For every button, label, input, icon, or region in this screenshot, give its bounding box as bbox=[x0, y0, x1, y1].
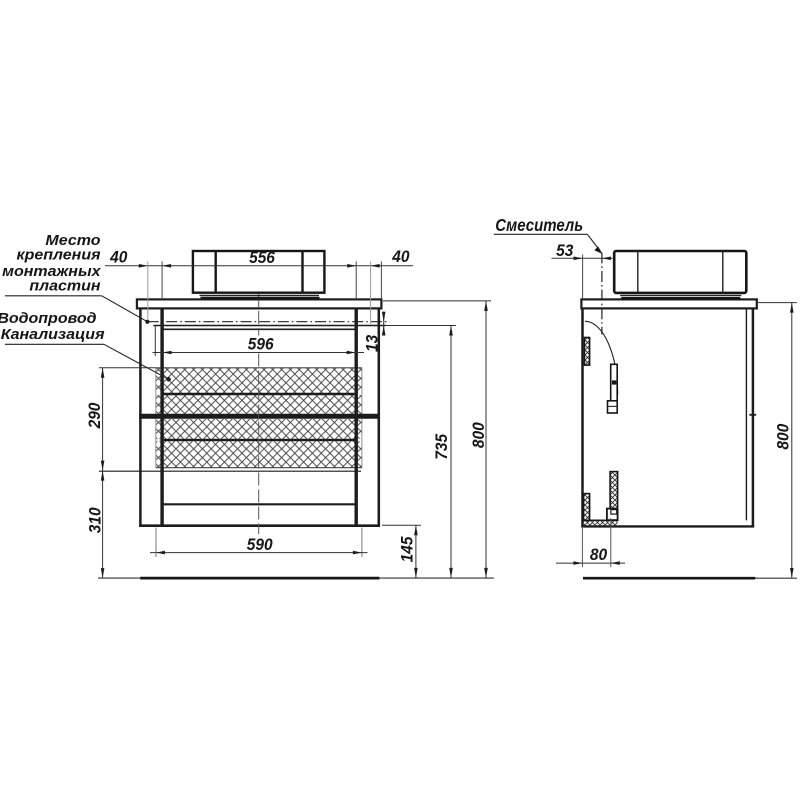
svg-text:Канализация: Канализация bbox=[1, 326, 105, 343]
svg-text:556: 556 bbox=[249, 248, 276, 267]
svg-text:800: 800 bbox=[774, 424, 793, 450]
svg-text:590: 590 bbox=[247, 536, 273, 555]
svg-text:40: 40 bbox=[391, 247, 409, 266]
svg-text:145: 145 bbox=[398, 536, 417, 563]
svg-text:Смеситель: Смеситель bbox=[495, 216, 583, 235]
svg-text:53: 53 bbox=[556, 242, 573, 261]
svg-text:13: 13 bbox=[363, 335, 382, 352]
svg-text:800: 800 bbox=[469, 422, 488, 448]
svg-text:Водопровод: Водопровод bbox=[0, 310, 97, 327]
svg-text:310: 310 bbox=[86, 507, 105, 533]
svg-text:735: 735 bbox=[432, 433, 451, 460]
svg-text:крепления: крепления bbox=[17, 247, 101, 264]
svg-text:290: 290 bbox=[86, 403, 105, 430]
svg-text:80: 80 bbox=[590, 545, 607, 564]
svg-text:40: 40 bbox=[109, 248, 127, 267]
svg-text:пластин: пластин bbox=[29, 278, 101, 295]
svg-text:596: 596 bbox=[248, 335, 275, 354]
